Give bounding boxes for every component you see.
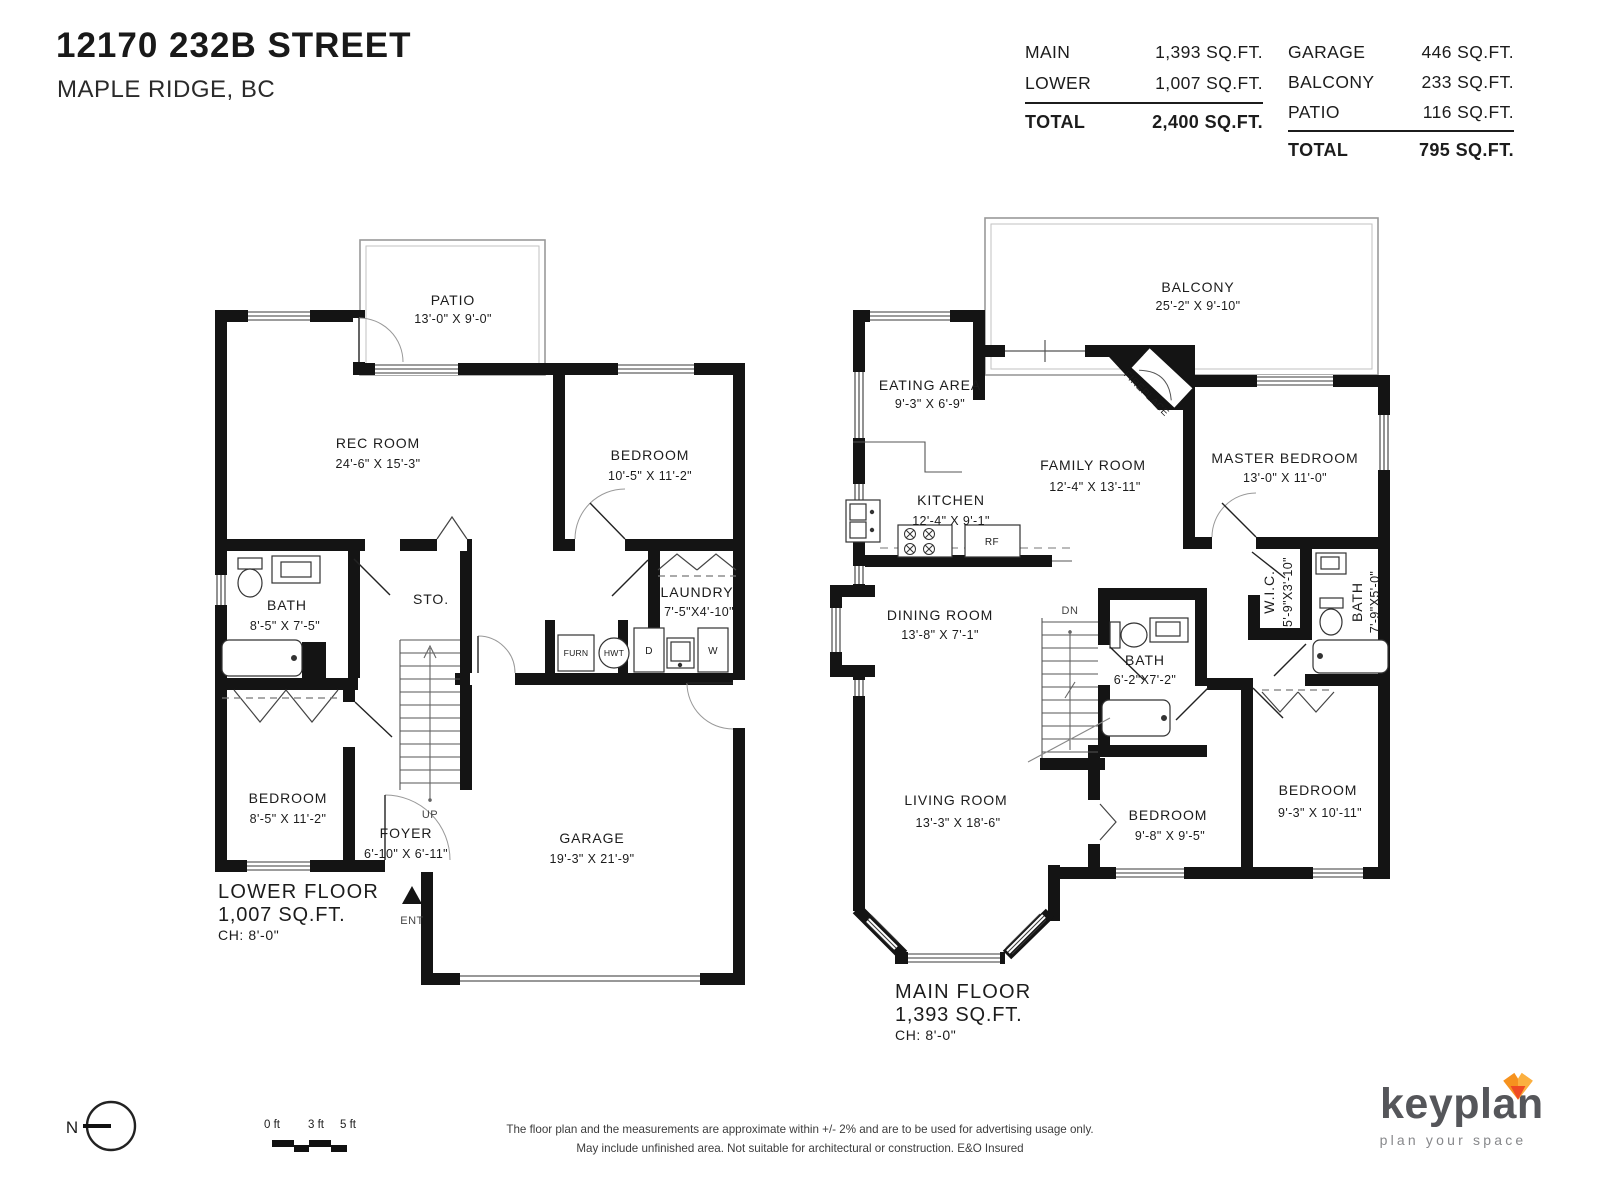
area-label: MAIN xyxy=(1025,42,1070,63)
disclaimer-line2: May include unfinished area. Not suitabl… xyxy=(400,1139,1200,1158)
room-label-eating-area: EATING AREA xyxy=(879,377,981,393)
scale-tick: 3 ft xyxy=(308,1119,325,1131)
room-label-bath: BATH xyxy=(267,597,307,613)
toilet-bowl xyxy=(1320,609,1342,635)
room-label-bedroom2: BEDROOM xyxy=(1129,807,1208,823)
dryer-label: D xyxy=(645,646,653,657)
fridge-label: RF xyxy=(985,537,999,548)
room-label-bath: BATH xyxy=(1125,652,1165,668)
room-dims-rec-room: 24'-6" X 15'-3" xyxy=(336,457,421,471)
toilet-tank xyxy=(238,558,262,569)
room-label-storage: STO. xyxy=(413,591,449,607)
room-dims-living-room: 13'-3" X 18'-6" xyxy=(916,816,1001,830)
bay-window-walls xyxy=(857,909,1050,955)
sliding-door xyxy=(1005,340,1085,362)
room-label-laundry: LAUNDRY xyxy=(661,584,734,600)
total-value: 795 SQ.FT. xyxy=(1419,140,1514,161)
area-label: LOWER xyxy=(1025,73,1091,94)
area-value: 446 SQ.FT. xyxy=(1421,42,1514,63)
stairs-down xyxy=(1028,618,1110,762)
room-label-bedroom2: BEDROOM xyxy=(249,790,328,806)
area-label: GARAGE xyxy=(1288,42,1365,63)
brand-tagline: plan your space xyxy=(1378,1132,1528,1148)
furnace-label: FURN xyxy=(564,648,589,658)
area-table-outdoor: GARAGE 446 SQ.FT. BALCONY 233 SQ.FT. PAT… xyxy=(1288,37,1514,169)
room-label-dining-room: DINING ROOM xyxy=(887,607,993,623)
room-label-family-room: FAMILY ROOM xyxy=(1040,457,1146,473)
north-indicator: N xyxy=(55,1095,145,1160)
lower-floor-title: LOWER FLOOR xyxy=(218,881,379,903)
room-dims-laundry: 7'-5"X4'-10" xyxy=(664,605,734,619)
room-label-bedroom1: BEDROOM xyxy=(611,447,690,463)
lower-floor-plan: PATIO 13'-0" X 9'-0" REC ROOM 24'-6" X 1… xyxy=(210,232,760,992)
room-dims-family-room: 12'-4" X 13'-11" xyxy=(1049,480,1140,494)
main-floor-title: MAIN FLOOR xyxy=(895,981,1031,1003)
room-label-master-bedroom: MASTER BEDROOM xyxy=(1211,450,1358,466)
scale-tick: 0 ft xyxy=(264,1119,281,1131)
area-label: PATIO xyxy=(1288,102,1340,123)
scale-bar: 0 ft 3 ft 5 ft xyxy=(255,1112,365,1160)
room-label-rec-room: REC ROOM xyxy=(336,435,420,451)
stairs-up-label: UP xyxy=(422,809,438,821)
total-value: 2,400 SQ.FT. xyxy=(1152,112,1263,133)
lower-floor-ceiling: CH: 8'-0" xyxy=(218,927,279,943)
area-value: 1,393 SQ.FT. xyxy=(1155,42,1263,63)
room-label-bedroom3: BEDROOM xyxy=(1279,782,1358,798)
area-table-building: MAIN 1,393 SQ.FT. LOWER 1,007 SQ.FT. TOT… xyxy=(1025,37,1263,141)
scale-tick: 5 ft xyxy=(340,1119,357,1131)
room-dims-bedroom2: 9'-8" X 9'-5" xyxy=(1135,829,1205,843)
room-dims-bath2: 7'-9"X5'-0" xyxy=(1368,571,1382,634)
washer-label: W xyxy=(708,646,718,657)
room-dims-dining-room: 13'-8" X 7'-1" xyxy=(901,628,979,642)
windows xyxy=(217,312,694,870)
bathtub xyxy=(222,640,302,676)
main-floor-area: 1,393 SQ.FT. xyxy=(895,1004,1022,1026)
table-row: GARAGE 446 SQ.FT. xyxy=(1288,37,1514,67)
room-dims-master-bedroom: 13'-0" X 11'-0" xyxy=(1243,471,1327,485)
area-value: 233 SQ.FT. xyxy=(1421,72,1514,93)
hwt-label: HWT xyxy=(604,648,625,658)
north-label: N xyxy=(66,1118,78,1137)
room-dims-garage: 19'-3" X 21'-9" xyxy=(550,852,635,866)
room-label-garage: GARAGE xyxy=(559,830,624,846)
room-dims-bath: 6'-2"X7'-2" xyxy=(1114,673,1177,687)
scale-bar-segments xyxy=(272,1140,347,1152)
disclaimer: The floor plan and the measurements are … xyxy=(400,1120,1200,1158)
main-floor-plan: FIREPLACE xyxy=(810,210,1400,1040)
total-label: TOTAL xyxy=(1025,112,1085,133)
room-label-living-room: LIVING ROOM xyxy=(904,792,1007,808)
toilet-tank xyxy=(1320,598,1343,608)
room-dims-bedroom1: 10'-5" X 11'-2" xyxy=(608,469,692,483)
floor-plan-sheet: 12170 232B STREET MAPLE RIDGE, BC MAIN 1… xyxy=(0,0,1600,1200)
stairs-down-label: DN xyxy=(1062,605,1079,617)
total-label: TOTAL xyxy=(1288,140,1348,161)
page-title: 12170 232B STREET xyxy=(56,26,412,66)
room-dims-bedroom3: 9'-3" X 10'-11" xyxy=(1278,806,1362,820)
room-dims-eating-area: 9'-3" X 6'-9" xyxy=(895,397,965,411)
room-dims-bath: 8'-5" X 7'-5" xyxy=(250,619,320,633)
room-label-bath2: BATH xyxy=(1349,582,1365,622)
fox-logo-icon xyxy=(1500,1066,1536,1104)
room-label-kitchen: KITCHEN xyxy=(917,492,985,508)
toilet-bowl xyxy=(238,569,262,597)
room-dims-wic: 5'-9"X3'-10" xyxy=(1281,557,1295,627)
table-total-row: TOTAL 795 SQ.FT. xyxy=(1288,132,1514,169)
table-total-row: TOTAL 2,400 SQ.FT. xyxy=(1025,104,1263,141)
table-row: MAIN 1,393 SQ.FT. xyxy=(1025,37,1263,68)
room-dims-patio: 13'-0" X 9'-0" xyxy=(414,312,492,326)
page-subtitle: MAPLE RIDGE, BC xyxy=(57,76,275,104)
stairs-up xyxy=(400,640,460,802)
lower-floor-area: 1,007 SQ.FT. xyxy=(218,904,345,926)
room-dims-balcony: 25'-2" X 9'-10" xyxy=(1156,299,1241,313)
bathtub xyxy=(1313,640,1388,673)
room-dims-bedroom2: 8'-5" X 11'-2" xyxy=(250,812,327,826)
area-value: 1,007 SQ.FT. xyxy=(1155,73,1263,94)
room-label-balcony: BALCONY xyxy=(1161,279,1234,295)
table-row: PATIO 116 SQ.FT. xyxy=(1288,97,1514,127)
entry-arrow-icon xyxy=(402,886,422,904)
room-label-wic: W.I.C. xyxy=(1261,570,1277,614)
entry-label: ENT xyxy=(400,915,424,927)
bathtub xyxy=(1102,700,1170,736)
table-row: BALCONY 233 SQ.FT. xyxy=(1288,67,1514,97)
disclaimer-line1: The floor plan and the measurements are … xyxy=(400,1120,1200,1139)
room-dims-kitchen: 12'-4" X 9'-1" xyxy=(912,514,990,528)
room-dims-foyer: 6'-10" X 6'-11" xyxy=(364,847,448,861)
toilet-tank xyxy=(1110,622,1120,648)
room-label-foyer: FOYER xyxy=(380,825,433,841)
table-row: LOWER 1,007 SQ.FT. xyxy=(1025,68,1263,99)
area-value: 116 SQ.FT. xyxy=(1423,102,1514,123)
toilet-bowl xyxy=(1121,623,1147,647)
area-label: BALCONY xyxy=(1288,72,1374,93)
room-label-patio: PATIO xyxy=(431,292,475,308)
sink xyxy=(281,562,311,577)
main-floor-ceiling: CH: 8'-0" xyxy=(895,1027,956,1040)
